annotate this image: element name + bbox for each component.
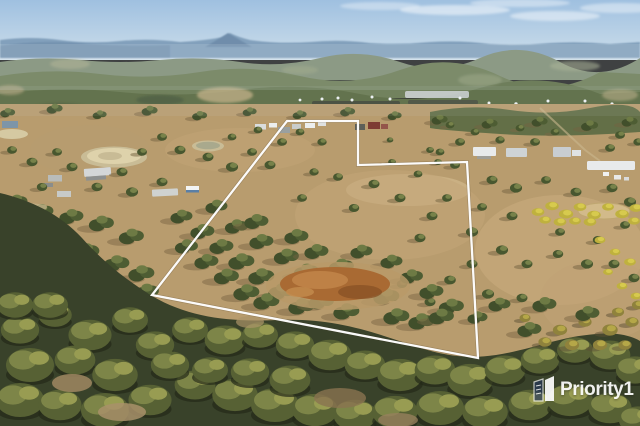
landscape-scene <box>0 0 640 426</box>
dirt-patch <box>266 262 410 310</box>
priority1-watermark: Priority1 <box>532 375 634 403</box>
aerial-photo: Priority1 <box>0 0 640 426</box>
haze-overlay <box>0 44 640 116</box>
priority1-logo-text: Priority1 <box>560 380 634 399</box>
priority1-logo-icon <box>532 375 556 403</box>
